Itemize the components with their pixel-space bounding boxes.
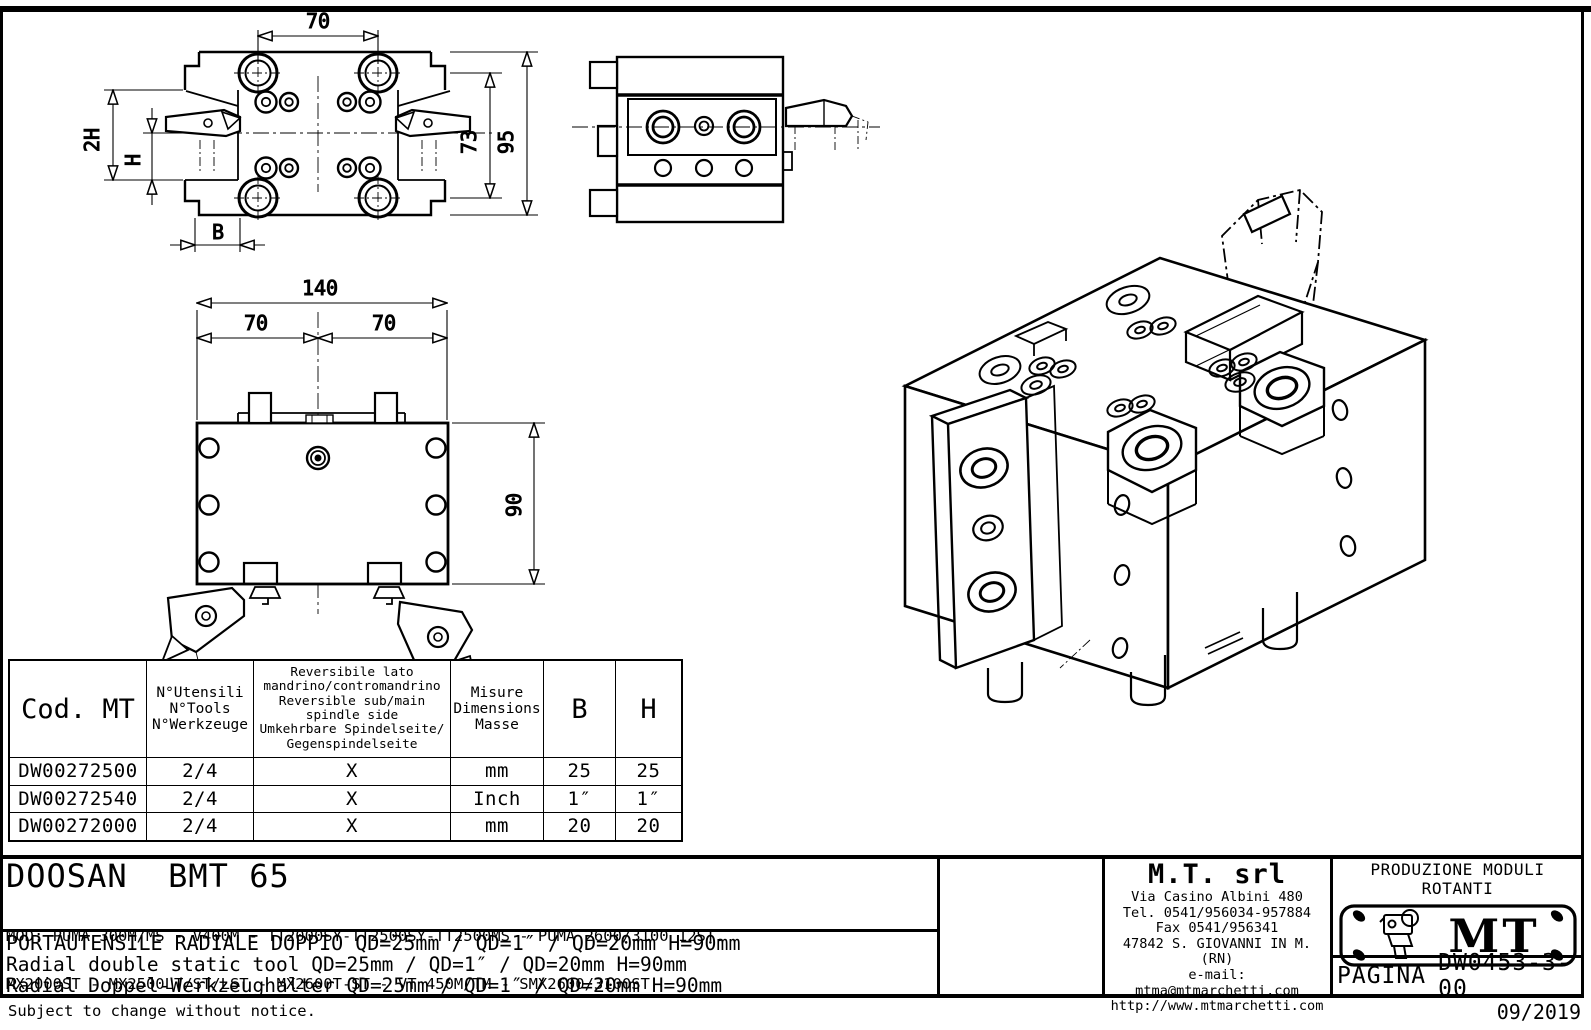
dim-70-top	[258, 30, 378, 64]
page-code: DW0453-3-00	[1438, 950, 1588, 1002]
dim-label-h: H	[121, 154, 145, 166]
col-header-b: B	[543, 661, 615, 757]
col-header-h: H	[615, 661, 681, 757]
page-code-row: PAGINA DW0453-3-00	[1332, 958, 1588, 994]
table-row-cod: DW00272000	[10, 812, 146, 840]
dim-label-95: 95	[494, 130, 518, 154]
left-tool-insert	[166, 110, 240, 172]
model-title: DOOSAN BMT 65	[6, 857, 290, 895]
table-row-b: 25	[543, 757, 615, 785]
product-descriptions: PORTAUTENSILE RADIALE DOPPIO QD=25mm / Q…	[6, 933, 931, 996]
company-address: Via Casino Albini 480	[1104, 890, 1330, 906]
dim-label-70-top: 70	[306, 9, 330, 33]
dim-label-140: 140	[302, 276, 338, 300]
brand-claim: PRODUZIONE MODULI ROTANTI	[1332, 860, 1583, 898]
titleblock-v1	[937, 855, 940, 997]
spec-table: Cod. MT N°Utensili N°Tools N°Werkzeuge R…	[8, 659, 683, 842]
table-row-cod: DW00272540	[10, 785, 146, 813]
table-row-measure: mm	[450, 812, 543, 840]
frame-left	[0, 6, 3, 997]
table-row-cod: DW00272500	[10, 757, 146, 785]
company-city: 47842 S. GIOVANNI IN M. (RN)	[1104, 937, 1330, 968]
table-row-reversible: X	[253, 757, 450, 785]
table-row-reversible: X	[253, 785, 450, 813]
front-view-drawing: 140 70 70	[146, 276, 545, 692]
table-row-h: 20	[615, 812, 681, 840]
dim-label-90: 90	[502, 493, 526, 517]
footer-date: 09/2019	[1497, 1000, 1581, 1024]
isometric-view-drawing	[905, 190, 1425, 705]
col-header-reversible: Reversibile lato mandrino/contromandrino…	[253, 661, 450, 757]
dim-2h-h	[104, 90, 190, 205]
table-row-b: 1″	[543, 785, 615, 813]
company-email: e-mail: mtma@mtmarchetti.com	[1104, 968, 1330, 999]
dim-label-b: B	[212, 220, 224, 244]
description-english: Radial double static tool QD=25mm / QD=1…	[6, 954, 931, 975]
col-header-cod-mt: Cod. MT	[10, 661, 146, 757]
side-view-tool	[786, 100, 868, 152]
side-view-drawing	[572, 57, 880, 222]
dim-label-73: 73	[457, 130, 481, 154]
dim-label-70-left: 70	[244, 311, 268, 335]
table-row-tools: 2/4	[146, 812, 253, 840]
dim-label-2h: 2H	[80, 128, 104, 152]
description-german: Radial Doppel-Werkzeughalter QD=25mm / Q…	[6, 975, 931, 996]
col-header-measure: Misure Dimensions Masse	[450, 661, 543, 757]
dim-label-70-right: 70	[372, 311, 396, 335]
description-italian: PORTAUTENSILE RADIALE DOPPIO QD=25mm / Q…	[6, 933, 931, 954]
company-phone: Tel. 0541/956034-957884	[1104, 906, 1330, 922]
company-block: M.T. srl Via Casino Albini 480 Tel. 0541…	[1104, 858, 1330, 996]
table-row-h: 25	[615, 757, 681, 785]
table-row-h: 1″	[615, 785, 681, 813]
plan-view-drawing: 70 73 95 2H H B	[80, 9, 538, 252]
table-row-measure: Inch	[450, 785, 543, 813]
frame-right	[1581, 6, 1584, 997]
table-row-reversible: X	[253, 812, 450, 840]
col-header-tools: N°Utensili N°Tools N°Werkzeuge	[146, 661, 253, 757]
table-row-b: 20	[543, 812, 615, 840]
page-label: PAGINA	[1337, 963, 1426, 989]
logo-tool-icon	[1380, 910, 1418, 958]
footer-note: Subject to change without notice.	[8, 1002, 316, 1020]
company-website: http://www.mtmarchetti.com	[1104, 999, 1330, 1015]
company-fax: Fax 0541/956341	[1104, 921, 1330, 937]
table-row-measure: mm	[450, 757, 543, 785]
table-row-tools: 2/4	[146, 757, 253, 785]
company-name: M.T. srl	[1104, 859, 1330, 890]
frame-top	[0, 6, 1591, 12]
drawing-sheet: 70 73 95 2H H B	[0, 0, 1591, 1030]
table-row-tools: 2/4	[146, 785, 253, 813]
